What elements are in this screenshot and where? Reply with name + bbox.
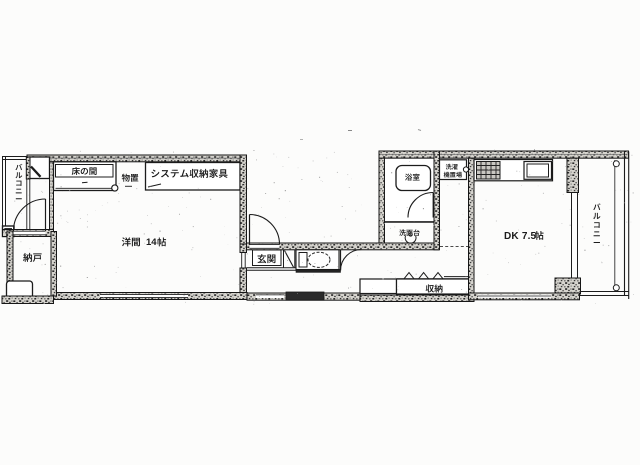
svg-text:DK 7.5: DK 7.5	[504, 231, 537, 242]
svg-text:14: 14	[146, 237, 157, 248]
